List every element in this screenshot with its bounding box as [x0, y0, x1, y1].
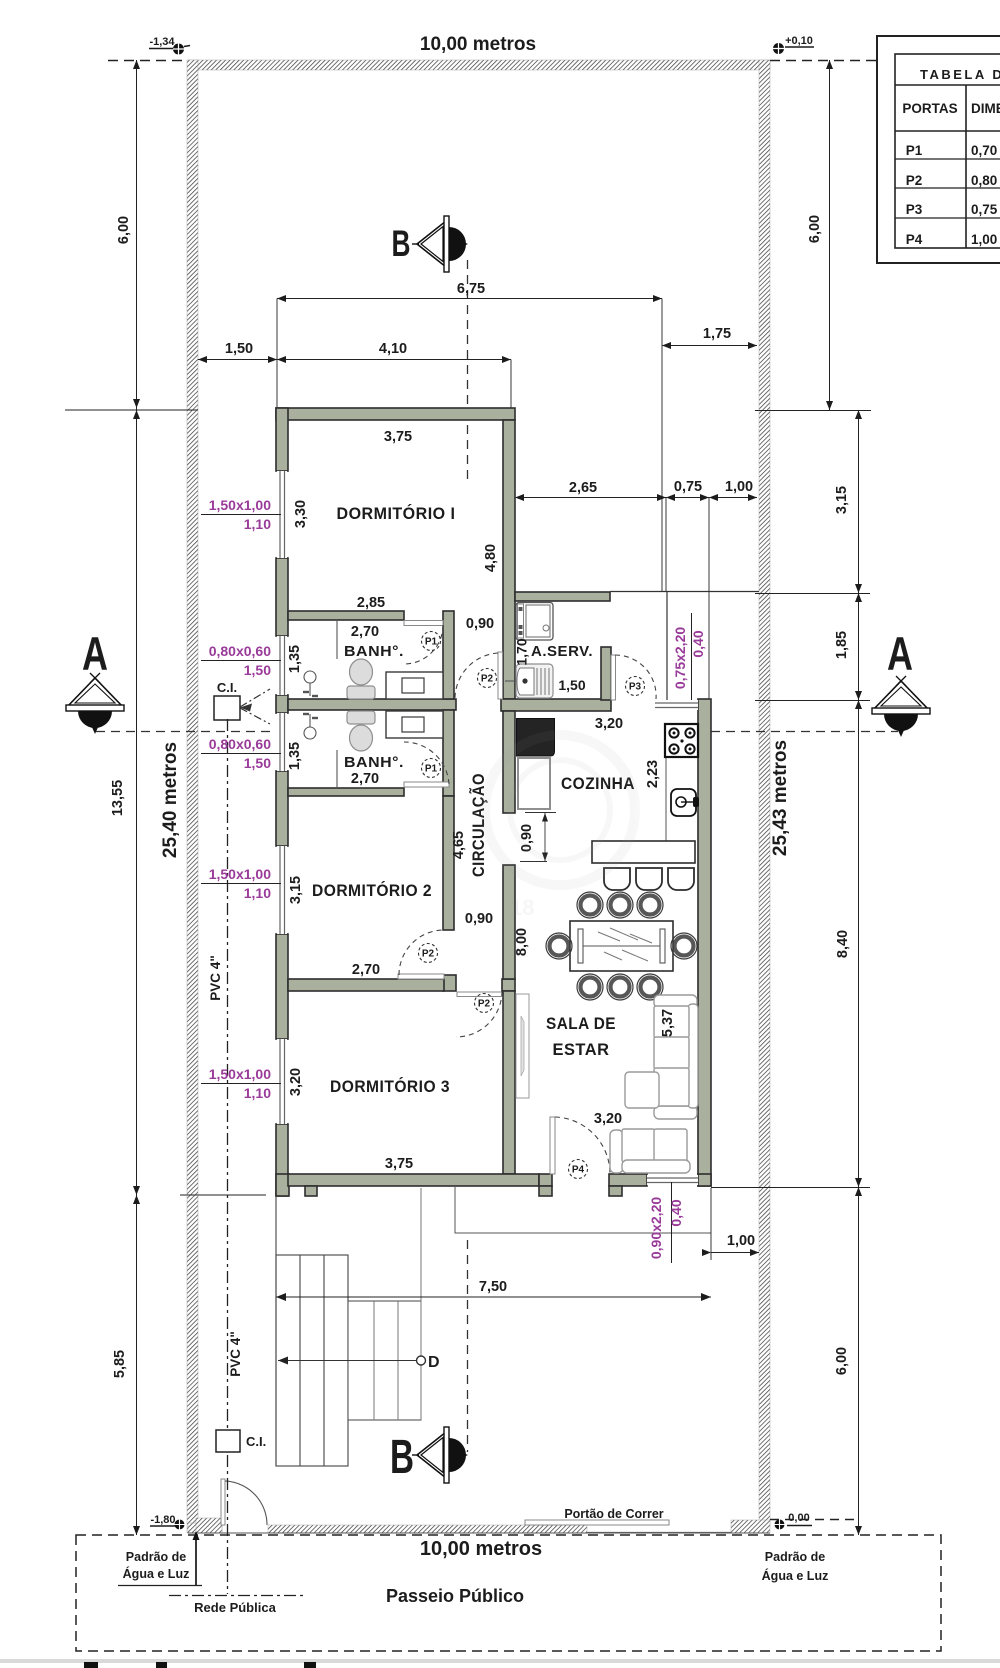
svg-text:B: B: [392, 223, 411, 264]
svg-text:PVC 4": PVC 4": [208, 955, 223, 1000]
svg-text:DORMITÓRIO I: DORMITÓRIO I: [337, 504, 456, 523]
svg-text:Água e Luz: Água e Luz: [123, 1566, 190, 1581]
svg-text:3,30: 3,30: [293, 500, 309, 528]
svg-text:P2: P2: [478, 999, 491, 1010]
svg-text:DIME: DIME: [971, 101, 1000, 116]
svg-text:0,80: 0,80: [971, 173, 997, 188]
svg-text:C.I.: C.I.: [217, 680, 237, 695]
svg-text:P1: P1: [906, 143, 923, 158]
svg-text:1,10: 1,10: [244, 516, 271, 532]
svg-text:Padrão de: Padrão de: [126, 1550, 186, 1564]
svg-text:1,70: 1,70: [514, 638, 530, 665]
svg-text:P2: P2: [906, 173, 923, 188]
svg-text:A: A: [887, 627, 913, 680]
svg-text:Rede Pública: Rede Pública: [194, 1600, 276, 1615]
svg-text:4,65: 4,65: [451, 831, 467, 859]
svg-text:C.I.: C.I.: [246, 1434, 266, 1449]
svg-text:3,15: 3,15: [288, 876, 304, 904]
svg-text:6,00: 6,00: [116, 216, 132, 244]
svg-text:3,15: 3,15: [834, 486, 850, 514]
svg-text:Padrão de: Padrão de: [765, 1550, 825, 1564]
svg-text:P4: P4: [572, 1165, 585, 1176]
svg-text:18: 18: [510, 895, 534, 920]
svg-text:25,43 metros: 25,43 metros: [770, 740, 791, 856]
svg-text:P1: P1: [425, 637, 438, 648]
svg-text:0,90: 0,90: [466, 616, 494, 632]
svg-text:3,75: 3,75: [385, 1156, 413, 1172]
svg-text:3,20: 3,20: [288, 1068, 304, 1096]
svg-text:3,20: 3,20: [595, 716, 623, 732]
svg-text:BANH°.: BANH°.: [344, 643, 404, 660]
svg-text:ESTAR: ESTAR: [553, 1041, 610, 1059]
svg-text:1,00: 1,00: [971, 232, 997, 247]
svg-text:2,65: 2,65: [569, 480, 597, 496]
svg-text:3,75: 3,75: [384, 429, 412, 445]
svg-text:6,00: 6,00: [807, 215, 823, 243]
svg-text:A: A: [82, 627, 108, 680]
svg-text:0,40: 0,40: [690, 630, 706, 657]
svg-text:1,10: 1,10: [244, 1085, 271, 1101]
svg-text:0,80x0,60: 0,80x0,60: [209, 643, 271, 659]
svg-text:Passeio Público: Passeio Público: [386, 1586, 524, 1606]
svg-text:SALA DE: SALA DE: [546, 1015, 616, 1033]
svg-text:1,35: 1,35: [287, 645, 303, 673]
svg-text:0,90: 0,90: [465, 911, 493, 927]
svg-text:Água e Luz: Água e Luz: [762, 1568, 829, 1583]
svg-text:13,55: 13,55: [110, 780, 126, 816]
svg-text:1,50: 1,50: [244, 755, 271, 771]
svg-text:2,70: 2,70: [351, 624, 379, 640]
svg-text:1,00: 1,00: [727, 1233, 755, 1249]
svg-text:7,50: 7,50: [479, 1279, 507, 1295]
svg-text:1,50x1,00: 1,50x1,00: [209, 866, 271, 882]
svg-text:BANH°.: BANH°.: [344, 754, 404, 771]
svg-text:+0,10: +0,10: [785, 35, 813, 47]
svg-text:PORTAS: PORTAS: [902, 101, 957, 116]
svg-text:1,35: 1,35: [287, 742, 303, 770]
svg-text:0,90x2,20: 0,90x2,20: [648, 1197, 664, 1259]
svg-text:1,50: 1,50: [225, 341, 253, 357]
svg-text:25,40 metros: 25,40 metros: [160, 742, 181, 858]
svg-text:0,75: 0,75: [971, 202, 998, 217]
svg-text:P3: P3: [906, 202, 923, 217]
svg-text:DORMITÓRIO 3: DORMITÓRIO 3: [330, 1077, 450, 1096]
svg-text:PVC 4": PVC 4": [228, 1331, 243, 1376]
svg-text:1,50: 1,50: [558, 677, 585, 693]
svg-text:0,40: 0,40: [668, 1199, 684, 1226]
svg-text:1,00: 1,00: [725, 479, 753, 495]
svg-text:A.SERV.: A.SERV.: [531, 644, 593, 660]
svg-text:1,50: 1,50: [244, 662, 271, 678]
svg-text:1,85: 1,85: [834, 631, 850, 659]
svg-text:8,00: 8,00: [514, 928, 530, 956]
svg-text:5,85: 5,85: [112, 1350, 128, 1378]
svg-text:0,75: 0,75: [674, 479, 702, 495]
svg-text:1,10: 1,10: [244, 885, 271, 901]
svg-text:0,80x0,60: 0,80x0,60: [209, 736, 271, 752]
svg-text:8,40: 8,40: [835, 930, 851, 958]
svg-text:10,00 metros: 10,00 metros: [420, 1538, 542, 1560]
svg-text:1,75: 1,75: [703, 326, 731, 342]
svg-text:0,70: 0,70: [971, 143, 997, 158]
svg-text:DORMITÓRIO 2: DORMITÓRIO 2: [312, 881, 432, 900]
svg-text:P3: P3: [629, 682, 642, 693]
svg-text:-1,80: -1,80: [150, 1514, 175, 1526]
svg-text:1,50x1,00: 1,50x1,00: [209, 497, 271, 513]
svg-text:6,00: 6,00: [834, 1347, 850, 1375]
svg-text:0,00: 0,00: [788, 1512, 809, 1524]
svg-text:D: D: [428, 1354, 440, 1371]
svg-text:0,75x2,20: 0,75x2,20: [672, 627, 688, 689]
svg-text:2,85: 2,85: [357, 595, 385, 611]
svg-text:6,75: 6,75: [457, 281, 485, 297]
svg-text:2,23: 2,23: [645, 760, 661, 788]
svg-text:P4: P4: [906, 232, 923, 247]
svg-text:5,37: 5,37: [660, 1009, 676, 1037]
svg-text:2,70: 2,70: [351, 771, 379, 787]
svg-text:P2: P2: [422, 949, 435, 960]
svg-text:10,00 metros: 10,00 metros: [420, 34, 536, 55]
svg-text:1,50x1,00: 1,50x1,00: [209, 1066, 271, 1082]
svg-text:2,70: 2,70: [352, 962, 380, 978]
svg-text:P2: P2: [481, 674, 494, 685]
svg-text:Portão de Correr: Portão de Correr: [564, 1507, 663, 1521]
svg-text:4,10: 4,10: [379, 341, 407, 357]
svg-text:-1,34: -1,34: [149, 36, 175, 48]
svg-text:P1: P1: [425, 764, 438, 775]
svg-text:3,20: 3,20: [594, 1111, 622, 1127]
svg-text:4,80: 4,80: [483, 544, 499, 572]
svg-text:B: B: [390, 1431, 414, 1484]
svg-text:TABELA D: TABELA D: [920, 67, 1000, 82]
